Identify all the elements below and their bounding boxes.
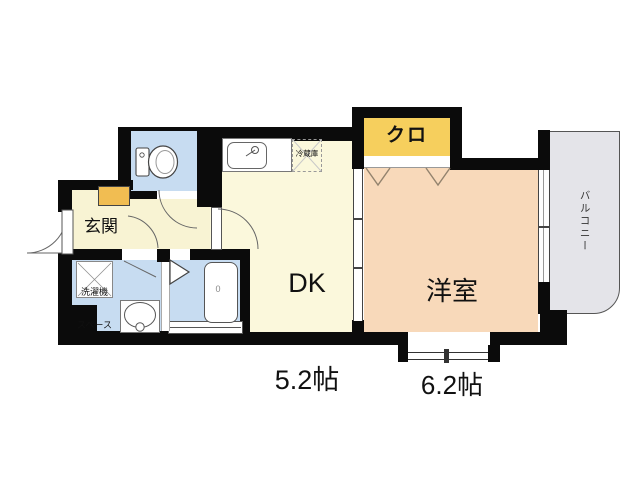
floorplan: 玄関 DK 5.2帖 洋室 6.2帖 クロ バルコニー 洗濯機 スペース 冷蔵庫…	[0, 0, 640, 480]
shoe-cabinet	[98, 186, 130, 206]
western-room-label-line2: 6.2帖	[380, 370, 524, 401]
wall	[58, 180, 72, 212]
bathtub-mark: 0	[204, 284, 232, 295]
western-room-label: 洋室 6.2帖	[380, 214, 524, 464]
closet-opening	[364, 156, 450, 168]
dk-door-leaf	[211, 207, 222, 250]
washbasin-counter	[120, 300, 160, 333]
western-room-label-line1: 洋室	[380, 276, 524, 307]
wall	[131, 127, 201, 131]
laundry-space-label-line1: 洗濯機	[74, 287, 115, 298]
balcony-label: バルコニー	[578, 190, 591, 253]
toilet-room	[131, 131, 200, 191]
wall	[157, 249, 170, 262]
laundry-space-label-line2: スペース	[74, 320, 115, 331]
kitchen-sink-icon	[227, 142, 267, 169]
wall	[352, 107, 462, 118]
balcony-window-tick	[538, 226, 550, 228]
refrigerator-label: 冷蔵庫	[291, 149, 323, 158]
toilet-door-opening	[157, 191, 197, 199]
wall	[538, 130, 550, 170]
entrance-label: 玄関	[70, 217, 132, 237]
dk-label-line2: 5.2帖	[248, 364, 366, 396]
wet-area-partition	[161, 262, 170, 331]
wall	[450, 158, 550, 170]
wall	[352, 107, 364, 169]
wall	[540, 310, 567, 332]
wall	[131, 191, 157, 199]
bathroom-window-line	[170, 327, 241, 328]
bathroom-door-opening	[170, 249, 190, 260]
wall	[190, 249, 250, 260]
dk-label-line1: DK	[248, 267, 366, 299]
laundry-space-label: 洗濯機 スペース	[74, 264, 115, 354]
dk-label: DK 5.2帖	[248, 202, 366, 461]
closet-label: クロ	[364, 125, 450, 148]
washroom-door-opening	[122, 249, 157, 260]
wall	[58, 253, 72, 340]
